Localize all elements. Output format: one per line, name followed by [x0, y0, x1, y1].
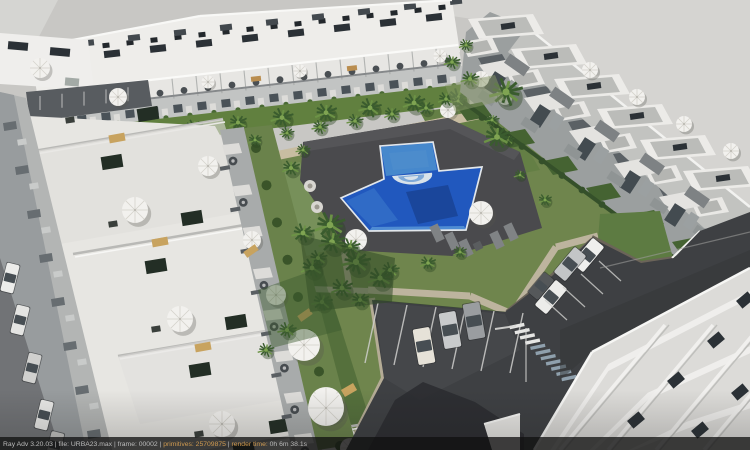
svg-text:Ray Adv 3.20.03 | file: URBA23: Ray Adv 3.20.03 | file: URBA23.max | fra… — [3, 441, 308, 448]
